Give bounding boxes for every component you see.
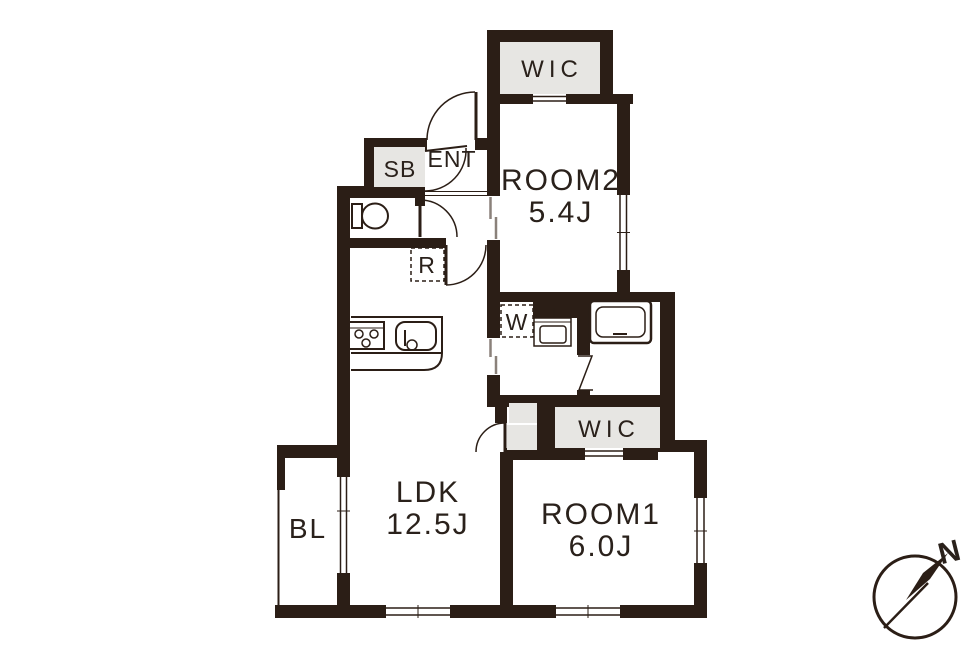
wall-segment xyxy=(337,238,446,248)
opening-wic-mid xyxy=(585,448,623,460)
compass-icon: N xyxy=(874,534,964,638)
wall-segment xyxy=(500,452,513,618)
bathtub-icon xyxy=(590,301,651,343)
room2-size-label: 5.4J xyxy=(529,196,594,229)
compass-line xyxy=(884,583,928,628)
wic-top-label: WIC xyxy=(521,56,583,83)
balcony-label: BL xyxy=(289,513,327,544)
wall-segment xyxy=(277,445,338,458)
toilet-door xyxy=(420,200,457,237)
window-balcony-slider xyxy=(337,477,350,573)
toilet-icon xyxy=(352,204,388,229)
wall-segment xyxy=(487,302,500,338)
refrigerator-label: R xyxy=(418,252,436,278)
room2-name-label: ROOM2 xyxy=(501,164,621,197)
wall-segment xyxy=(487,30,613,42)
window-room2-east xyxy=(617,195,630,270)
shoe-box-label: SB xyxy=(384,156,417,182)
room1-name-label: ROOM1 xyxy=(541,498,661,531)
washer-label: W xyxy=(506,309,529,335)
wall-segment xyxy=(533,302,577,318)
wall-segment xyxy=(275,605,386,618)
window-ldk-south xyxy=(386,605,450,618)
wall-segment xyxy=(337,186,425,198)
window-room1-south xyxy=(556,605,620,618)
wall-segment xyxy=(277,445,285,490)
sliding-door-room2 xyxy=(487,196,500,240)
wall-segment xyxy=(660,292,675,452)
closet-box-2 xyxy=(507,425,537,450)
stove-icon xyxy=(349,322,384,349)
floor-plan-page: WIC ROOM2 5.4J SB ENT R W WIC LDK 12.5J … xyxy=(0,0,980,655)
wall-segment xyxy=(487,30,500,196)
ldk-door xyxy=(446,245,486,285)
entrance-step xyxy=(425,192,487,196)
window-room1-east xyxy=(694,498,707,563)
room1-size-label: 6.0J xyxy=(569,530,634,563)
wall-segment xyxy=(694,452,707,498)
wall-segment xyxy=(577,302,590,355)
floor-plan: WIC ROOM2 5.4J SB ENT R W WIC LDK 12.5J … xyxy=(0,0,980,655)
wall-segment xyxy=(537,403,555,452)
entrance-label: ENT xyxy=(428,146,477,172)
sliding-door-washroom xyxy=(487,338,500,375)
wall-segment xyxy=(450,605,556,618)
wall-segment xyxy=(487,94,533,104)
bath-folding-door xyxy=(578,356,593,390)
front-door xyxy=(427,92,476,140)
opening-wic-top xyxy=(533,94,566,104)
room1-door xyxy=(476,423,505,452)
ldk-size-label: 12.5J xyxy=(386,508,469,541)
wall-segment xyxy=(600,30,613,96)
wic-mid-label: WIC xyxy=(578,416,640,443)
wall-segment xyxy=(620,605,707,618)
wall-segment xyxy=(658,440,707,452)
wall-segment xyxy=(364,138,374,193)
closet-box-1 xyxy=(509,403,537,423)
wall-segment xyxy=(495,403,507,423)
sink-icon xyxy=(396,322,436,350)
ldk-name-label: LDK xyxy=(396,476,460,509)
wall-segment xyxy=(623,448,658,460)
